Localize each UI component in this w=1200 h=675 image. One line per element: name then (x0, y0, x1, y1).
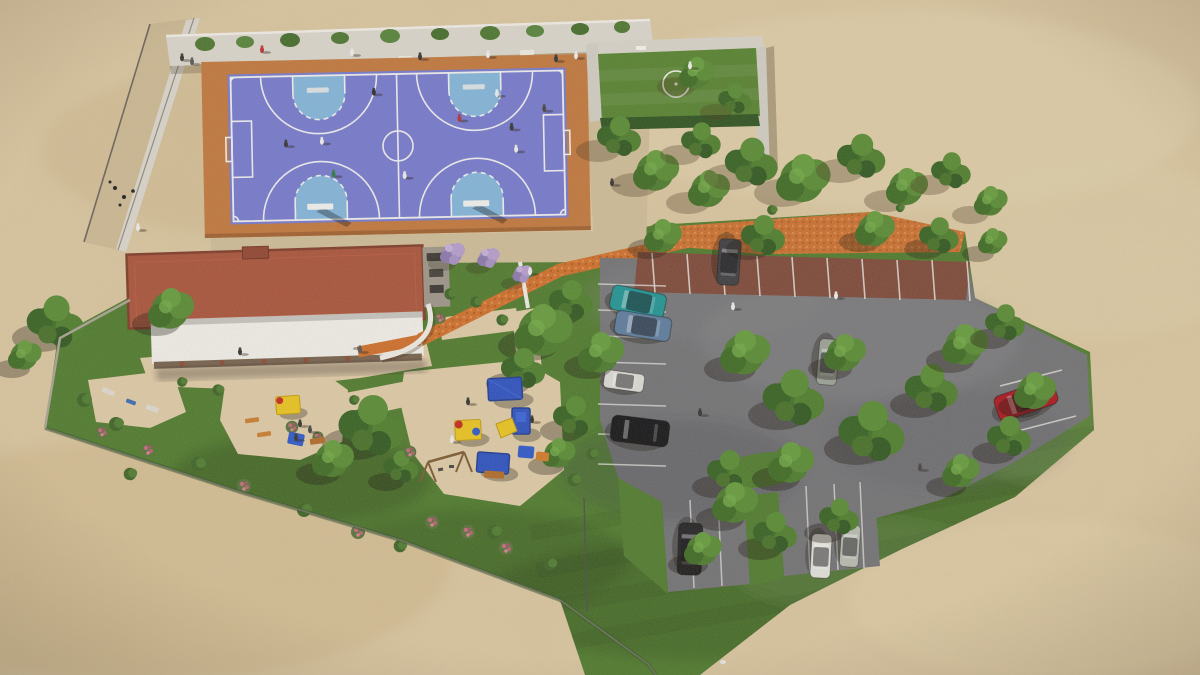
vignette (0, 0, 1200, 675)
aerial-render (0, 0, 1200, 675)
